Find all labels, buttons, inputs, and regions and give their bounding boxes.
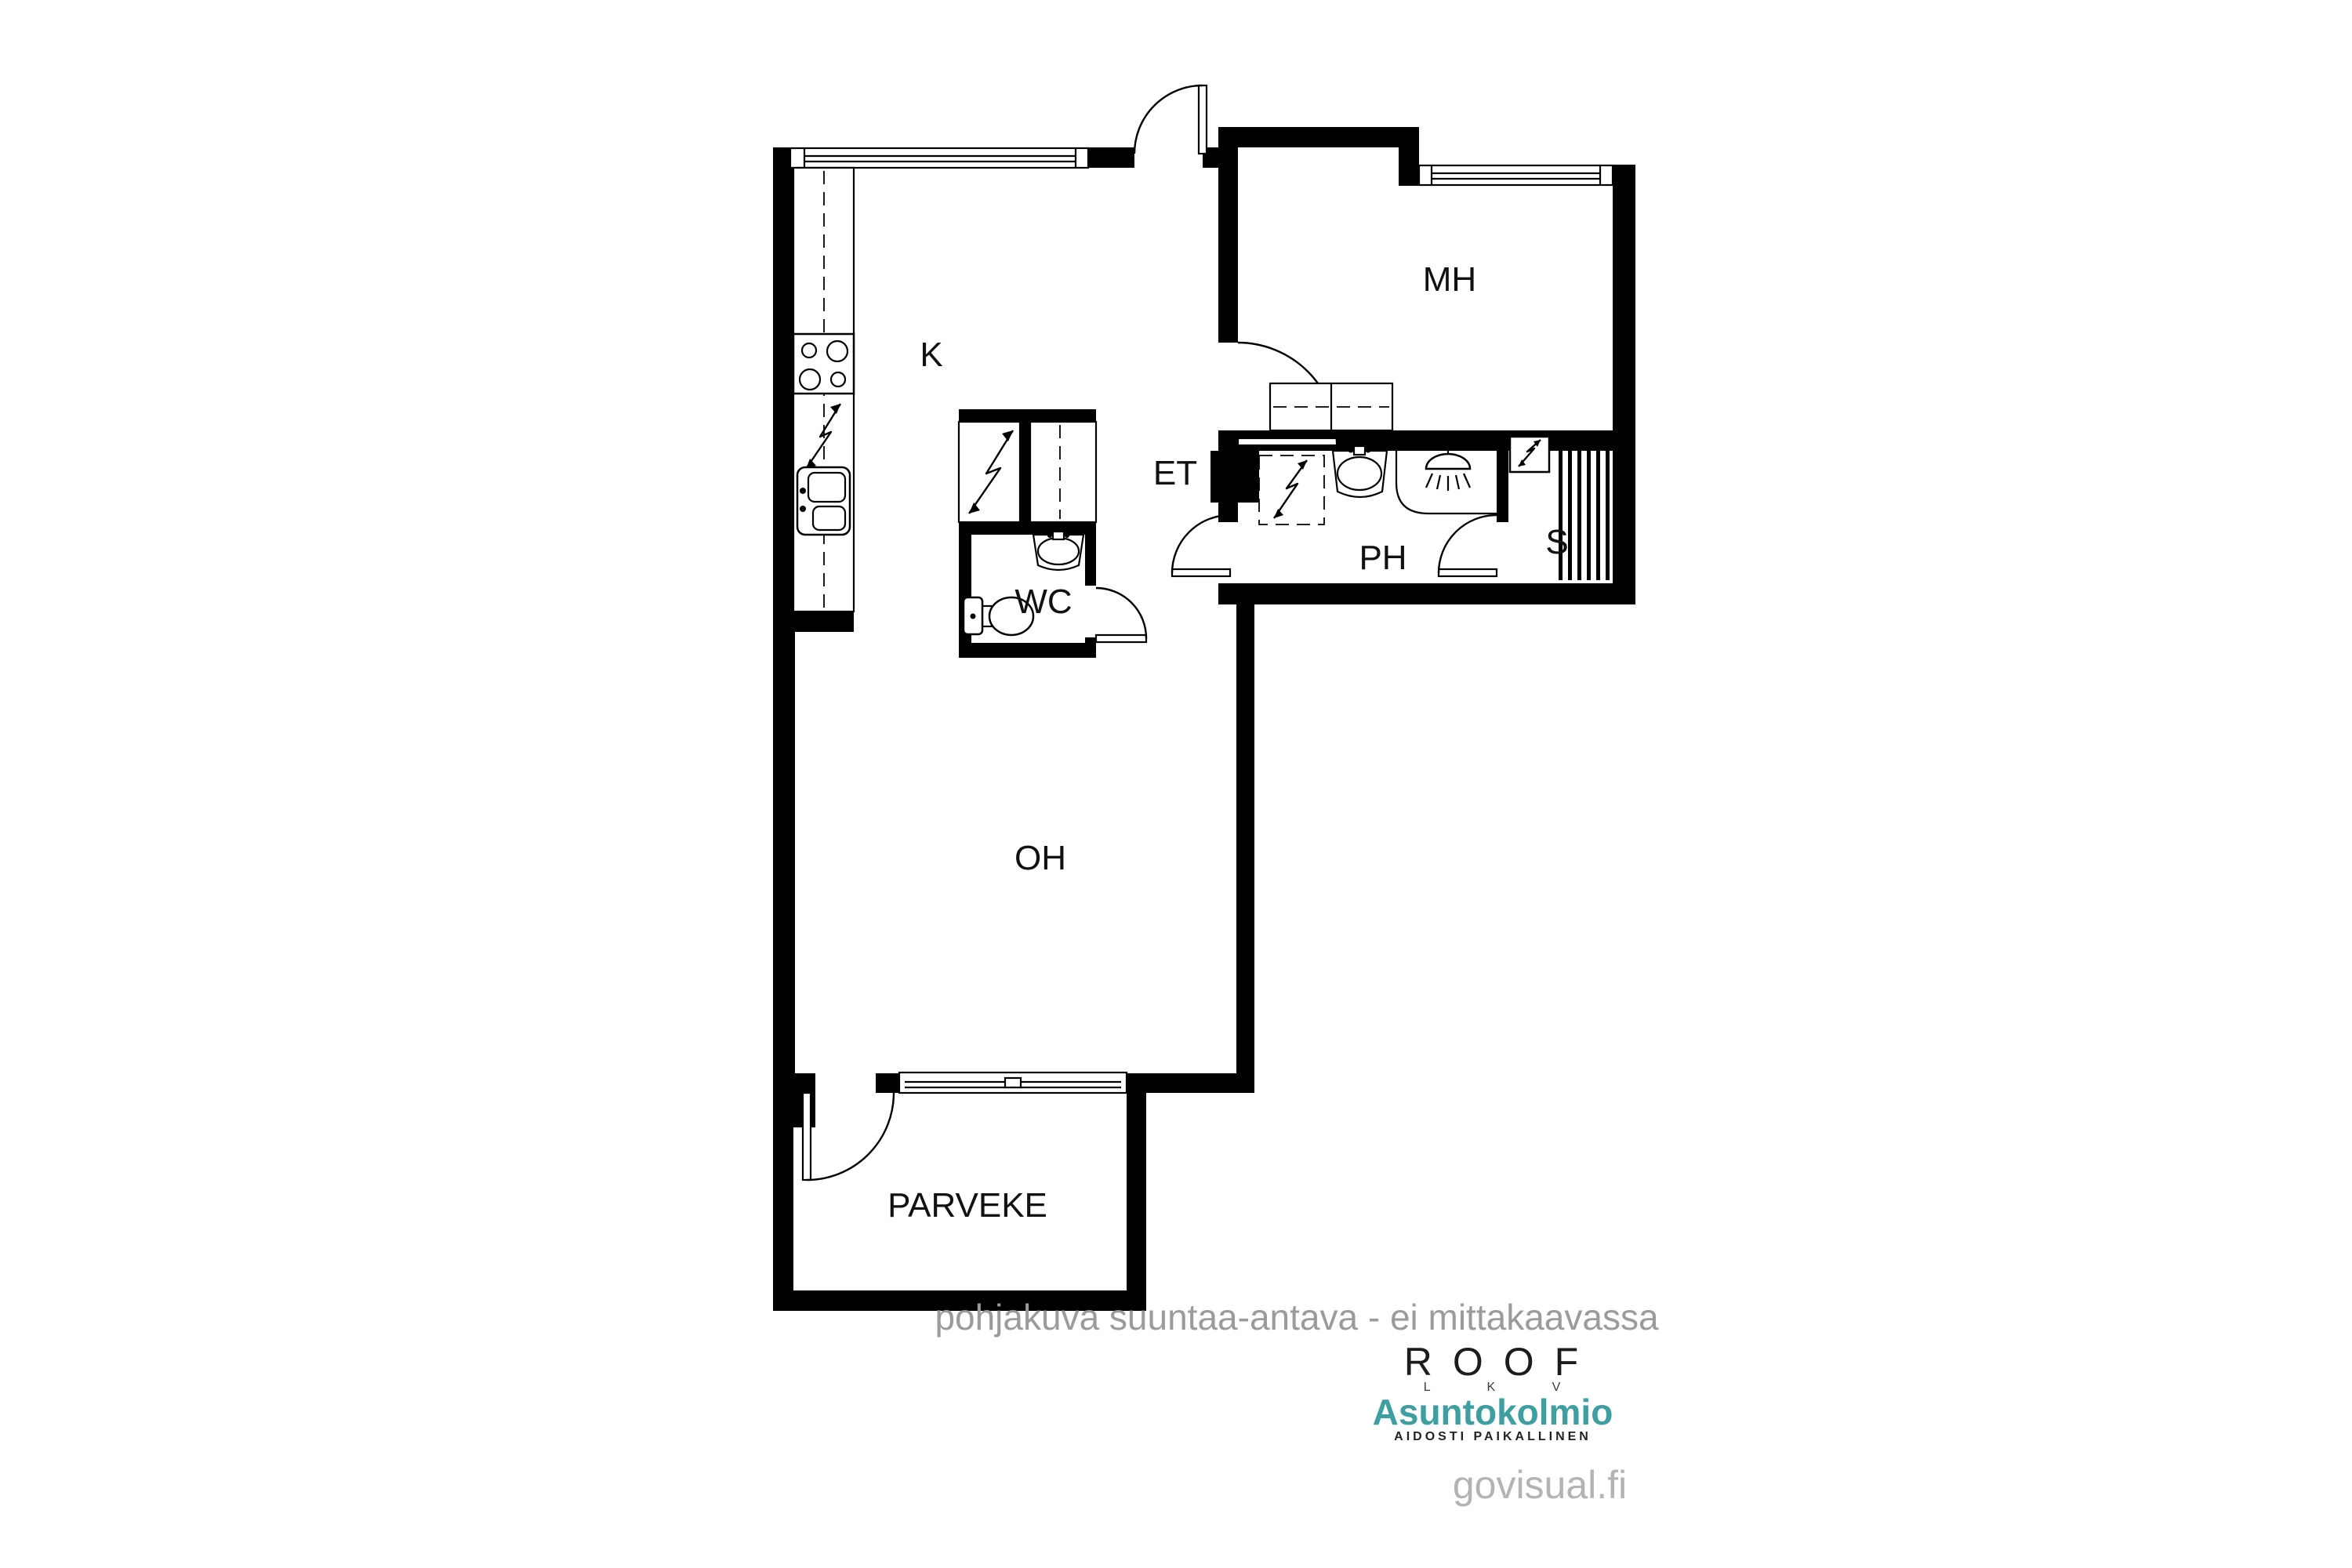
room-label-living-room: OH xyxy=(1014,839,1066,877)
wall-ph-left xyxy=(1218,503,1238,522)
wall-wc-bottom xyxy=(959,643,1096,658)
wall-bump-band xyxy=(1218,127,1419,147)
wall-closet-top xyxy=(959,409,1096,422)
wall-oh-bottom-right xyxy=(1127,1073,1254,1093)
stove-icon xyxy=(793,334,854,394)
wall-column-et xyxy=(1210,451,1259,503)
kitchen-window xyxy=(790,148,1088,168)
room-label-bathroom: PH xyxy=(1359,539,1406,577)
asuntokolmio-logo-title: Asuntokolmio xyxy=(1373,1392,1613,1432)
kitchen-sink-icon xyxy=(797,467,850,535)
washbasin-icon xyxy=(1333,446,1387,497)
wall-mh-west xyxy=(1218,147,1238,343)
wall-closet-divider xyxy=(1020,422,1030,522)
sauna-heater-icon xyxy=(1510,437,1549,472)
wall-ph-bottom xyxy=(1218,583,1635,604)
wall-wc-right-jamb xyxy=(1085,637,1096,658)
wardrobe-icon xyxy=(1270,383,1392,430)
wall-right-outer xyxy=(1613,165,1635,604)
roof-logo-title: ROOF xyxy=(1404,1340,1599,1384)
room-label-entry-hall: ET xyxy=(1153,454,1197,492)
wall-wc-left xyxy=(959,535,971,658)
balcony-window xyxy=(899,1073,1127,1093)
wall-left-outer xyxy=(773,147,795,1073)
wall-bump-step xyxy=(1399,127,1419,186)
wc-basin-icon xyxy=(1033,532,1083,570)
asuntokolmio-logo: Asuntokolmio AIDOSTI PAIKALLINEN xyxy=(1373,1392,1613,1443)
roof-lkv-logo: ROOF L K V xyxy=(1404,1340,1599,1394)
wall-sauna-partition xyxy=(1497,451,1508,522)
bedroom-window xyxy=(1419,165,1613,185)
room-label-bedroom: MH xyxy=(1423,260,1476,299)
wall-oh-right xyxy=(1236,583,1254,1093)
room-label-wc: WC xyxy=(1014,583,1072,621)
room-label-balcony: PARVEKE xyxy=(887,1186,1047,1225)
wall-wc-right-upper xyxy=(1085,535,1096,586)
room-label-kitchen: K xyxy=(920,336,942,374)
room-label-sauna: S xyxy=(1545,523,1568,561)
govisual-watermark: govisual.fi xyxy=(1453,1463,1627,1507)
wall-oh-bottom-jamb xyxy=(876,1073,899,1093)
floor-plan-drawing: K MH ET PH S WC OH PARVEKE pohjakuva suu… xyxy=(0,0,2352,1568)
wall-wc-top xyxy=(959,522,1096,535)
wall-balcony-right xyxy=(1127,1093,1146,1311)
wall-top-mid xyxy=(1088,147,1134,168)
asuntokolmio-logo-tagline: AIDOSTI PAIKALLINEN xyxy=(1394,1430,1592,1443)
wardrobe-closet xyxy=(1030,422,1096,522)
bedroom-fixtures xyxy=(1270,383,1392,430)
floor-plan-page: K MH ET PH S WC OH PARVEKE pohjakuva suu… xyxy=(0,0,2352,1568)
wall-balcony-left xyxy=(773,1127,793,1311)
disclaimer-text: pohjakuva suuntaa-antava - ei mittakaava… xyxy=(935,1297,1659,1338)
wall-counter-end-cap xyxy=(791,612,854,632)
